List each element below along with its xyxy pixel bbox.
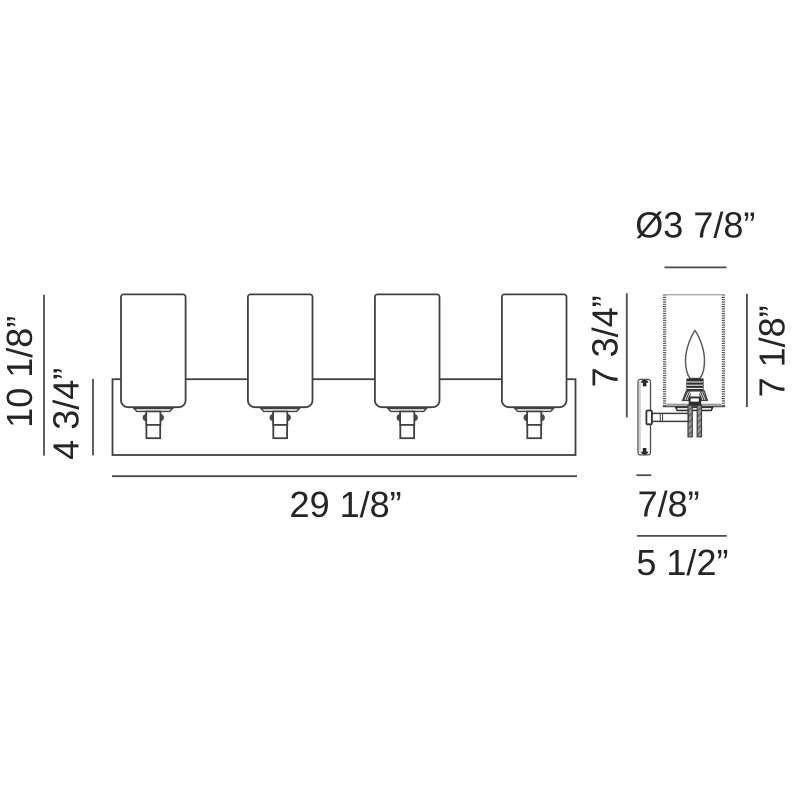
svg-text:5 1/2”: 5 1/2” xyxy=(636,542,728,583)
svg-text:Ø3 7/8”: Ø3 7/8” xyxy=(635,205,755,246)
svg-text:10 1/8”: 10 1/8” xyxy=(0,316,40,428)
svg-text:29 1/8”: 29 1/8” xyxy=(290,484,402,525)
svg-text:4 3/4”: 4 3/4” xyxy=(45,368,86,460)
svg-text:7 1/8”: 7 1/8” xyxy=(752,305,792,397)
svg-text:7/8”: 7/8” xyxy=(638,483,700,524)
svg-text:7 3/4”: 7 3/4” xyxy=(584,295,625,387)
